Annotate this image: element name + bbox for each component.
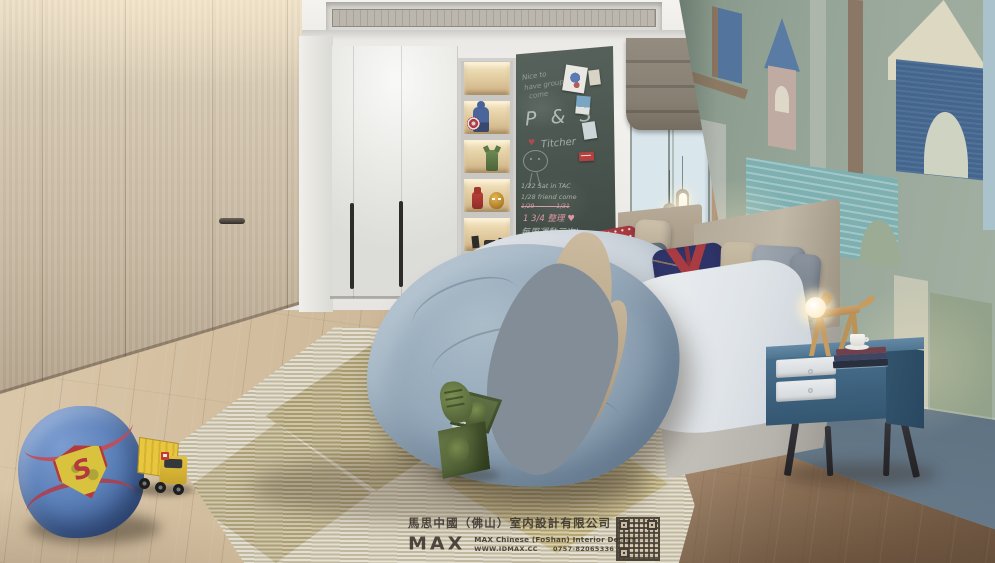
- ac-vent-grille: [332, 9, 656, 27]
- qr-finder-eye: [647, 520, 657, 530]
- qr-code: [616, 517, 660, 561]
- cup-handle: [864, 337, 869, 342]
- superman-s: S: [69, 453, 96, 487]
- pinned-card: [575, 95, 591, 114]
- drawer-knob: [808, 369, 813, 374]
- watermark-company-en: MAX Chinese (FoShan) Interior Design: [474, 535, 614, 544]
- chalk-greeting-3: come: [528, 90, 548, 101]
- concealed-door-handle: [219, 218, 245, 224]
- shelf-niche: [464, 140, 510, 173]
- watermark-company-cn: 馬思中國（佛山）室内設計有限公司: [408, 515, 620, 531]
- watermark-phone: 0757-82065336: [553, 545, 614, 553]
- white-wardrobe: [332, 46, 458, 298]
- pinned-photo: [582, 121, 597, 140]
- shelf-niche-empty: [464, 62, 510, 95]
- nightstand-drawer: [776, 356, 836, 378]
- max-logo: MAX: [408, 534, 465, 554]
- toy-truck-logo: [161, 452, 169, 460]
- truck-wheel: [139, 478, 150, 489]
- superman-beanbag: S: [18, 406, 144, 538]
- chalk-name: Titcher: [541, 136, 577, 150]
- nightstand-drawer: [776, 378, 836, 402]
- mini-figurine: [471, 236, 479, 249]
- iron-man-helmet: [489, 192, 504, 209]
- pinned-red-sticker: [579, 152, 594, 162]
- shelf-niche: [464, 179, 510, 212]
- display-shelving-unit: [458, 58, 516, 262]
- truck-wheel: [155, 482, 166, 493]
- watermark-subrow: WWW.IDMAX.CC 0757-82065336: [474, 545, 614, 553]
- kids-bedroom-render: Nice to have group come P & S ♥ Titcher …: [0, 0, 995, 563]
- nightstand-side: [886, 345, 924, 428]
- chalk-heart: ♥: [528, 138, 535, 147]
- chalk-note-3-struck: 1/29 ——— 1/31: [521, 203, 570, 210]
- white-wardrobe-handle: [399, 201, 403, 287]
- captain-america-shield: [467, 117, 480, 130]
- pinned-photo: [588, 69, 601, 85]
- white-wardrobe-handle: [350, 203, 354, 289]
- drawer-knob: [808, 388, 813, 393]
- pinned-polaroid: [562, 64, 588, 93]
- chalkboard: Nice to have group come P & S ♥ Titcher …: [516, 46, 616, 254]
- dog-lamp-bulb: [805, 297, 826, 318]
- lego-spiderman-toy: [472, 192, 483, 209]
- watermark-row: MAX MAX Chinese (FoShan) Interior Design…: [408, 533, 620, 555]
- chalk-note-2: 1/28 friend come: [521, 193, 577, 201]
- watermark-website: WWW.IDMAX.CC: [474, 545, 538, 553]
- chalk-note-1: 1/22 Sat in TAC: [521, 182, 571, 190]
- captain-america-toy: [473, 107, 489, 132]
- qr-finder-eye: [619, 520, 629, 530]
- watermark-text-col: MAX Chinese (FoShan) Interior Design WWW…: [474, 535, 614, 553]
- chalk-face-doodle: [523, 150, 548, 172]
- qr-finder-eye: [619, 548, 629, 558]
- chalk-note-4: 1 3/4 整理 ♥: [523, 212, 575, 224]
- hulk-box-body: [438, 421, 490, 479]
- watermark: 馬思中國（佛山）室内設計有限公司 MAX MAX Chinese (FoShan…: [408, 515, 620, 555]
- green-figure-toy: [486, 150, 498, 171]
- wall-recess-strip: [299, 36, 333, 312]
- cup: [850, 334, 865, 346]
- truck-wheel: [173, 484, 184, 495]
- shelf-niche: [464, 101, 510, 134]
